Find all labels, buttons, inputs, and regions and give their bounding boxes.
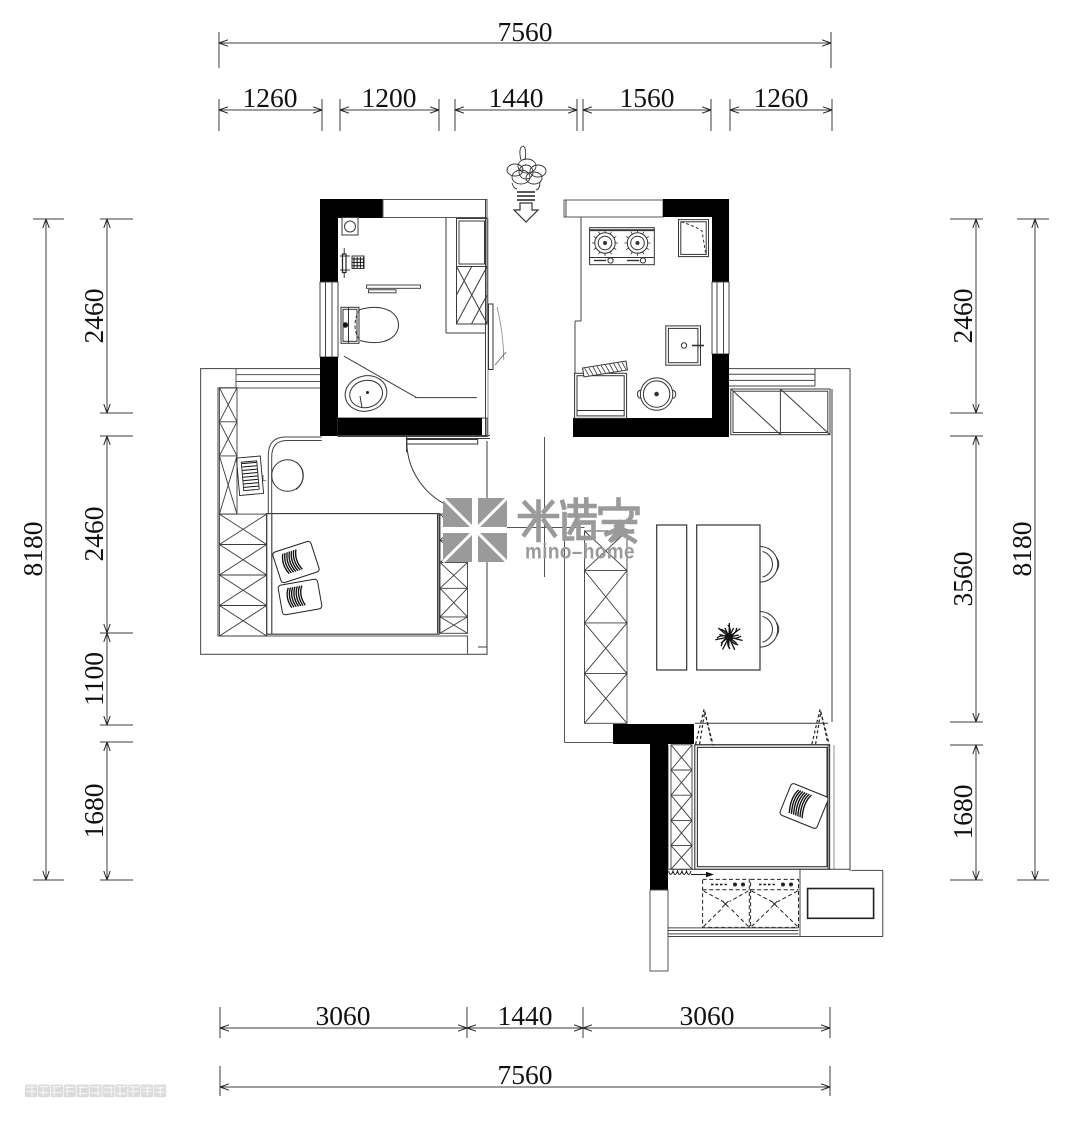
svg-text:7560: 7560 [498,1059,553,1090]
svg-text:1260: 1260 [243,82,298,113]
svg-text:8180: 8180 [17,522,48,577]
svg-text:3560: 3560 [947,552,978,607]
svg-text:2460: 2460 [78,289,109,344]
svg-text:1560: 1560 [620,82,675,113]
svg-text:2460: 2460 [947,289,978,344]
svg-text:1440: 1440 [498,1000,553,1031]
svg-text:7560: 7560 [498,16,553,47]
svg-text:8180: 8180 [1006,522,1037,577]
svg-text:3060: 3060 [680,1000,735,1031]
svg-text:1260: 1260 [754,82,809,113]
svg-text:2460: 2460 [78,507,109,562]
svg-text:mino–home: mino–home [525,540,635,564]
svg-text:1200: 1200 [362,82,417,113]
svg-text:1680: 1680 [78,784,109,839]
svg-text:1100: 1100 [78,652,109,706]
svg-text:1440: 1440 [489,82,544,113]
svg-text:3060: 3060 [316,1000,371,1031]
svg-text:L: L [262,474,267,483]
svg-text:1680: 1680 [947,785,978,840]
